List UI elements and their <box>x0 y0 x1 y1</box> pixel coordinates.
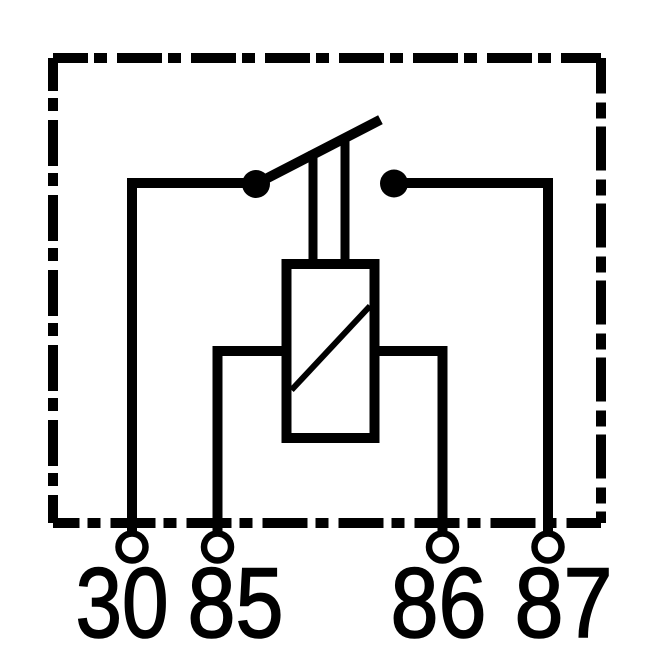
svg-text:30: 30 <box>76 547 169 656</box>
svg-text:87: 87 <box>515 547 613 656</box>
svg-text:85: 85 <box>188 547 284 656</box>
svg-text:86: 86 <box>391 547 487 656</box>
